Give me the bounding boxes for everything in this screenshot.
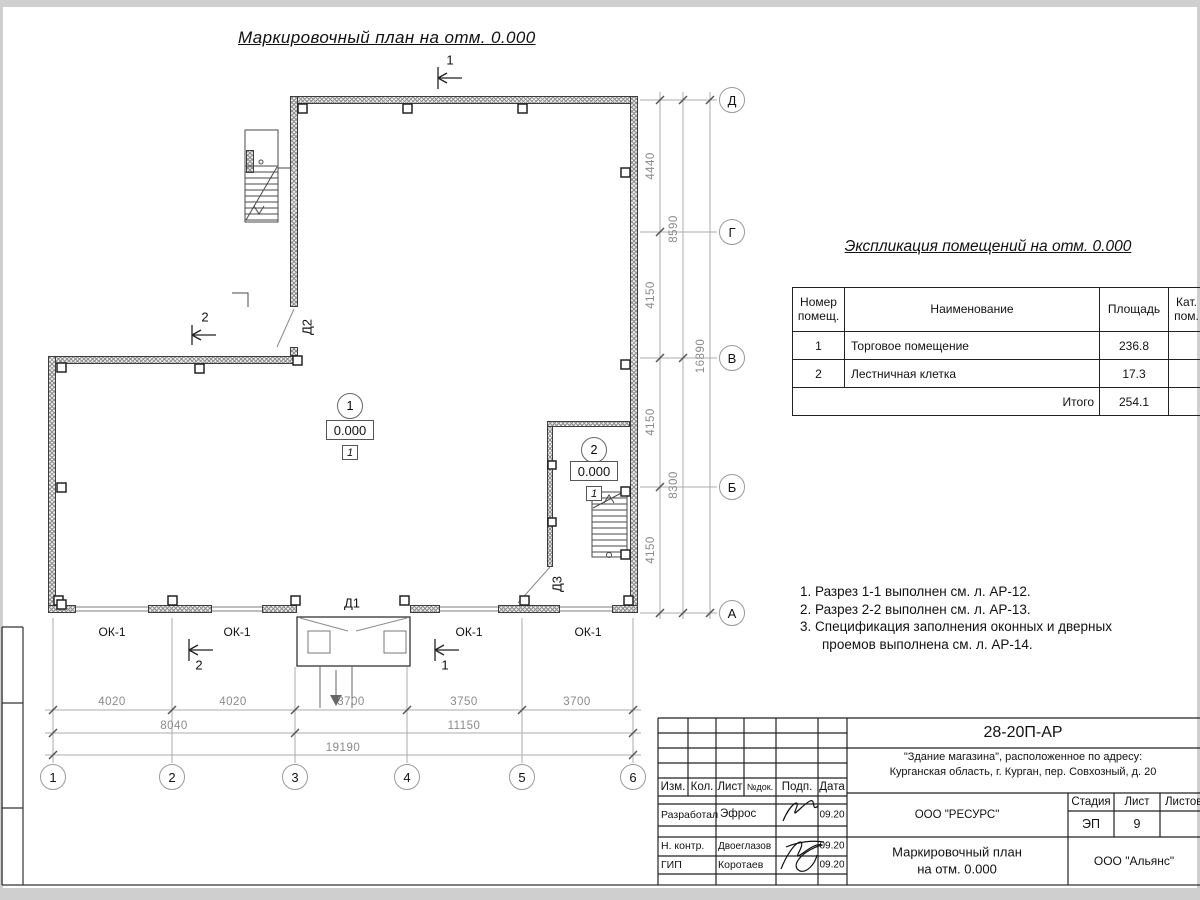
drawing-page: Маркировочный план на отм. 0.000 Эксплик…: [0, 0, 1200, 900]
col-header-name: Наименование: [845, 288, 1100, 332]
section-mark-2-left: 2: [201, 310, 208, 325]
window-label-ok1: ОК-1: [99, 625, 126, 639]
door-label-d1: Д1: [344, 596, 360, 611]
total-label: Итого: [793, 388, 1100, 416]
plan-title: Маркировочный план на отм. 0.000: [238, 28, 536, 48]
window-label-ok1: ОК-1: [456, 625, 483, 639]
cell-number: 1: [793, 332, 845, 360]
dim-text: 11150: [448, 720, 481, 732]
tb-col-izm: Изм.: [661, 781, 686, 793]
cell-category: [1169, 332, 1200, 360]
note-line: 3. Спецификация заполнения оконных и две…: [800, 618, 1112, 636]
tb-address-line2: Курганская область, г. Курган, пер. Совх…: [890, 766, 1157, 778]
exterior-stair: [232, 130, 292, 307]
dim-text: 3750: [450, 696, 478, 708]
tb-col-doc: №док.: [747, 782, 773, 792]
column-markers: [54, 104, 633, 609]
dim-text: 8590: [668, 215, 680, 243]
col-header-number: Номер помещ.: [793, 288, 845, 332]
tb-col-list: Лист: [718, 781, 743, 793]
room-number-bubble: 1: [337, 393, 363, 419]
axis-bubble-g: Г: [719, 219, 745, 245]
door-label-d3: Д3: [550, 576, 565, 592]
door-swings: [277, 309, 550, 631]
dim-text: 4150: [645, 536, 657, 564]
window-label-ok1: ОК-1: [575, 625, 602, 639]
col-header-category: Кат. пом.: [1169, 288, 1200, 332]
table-row: 2 Лестничная клетка 17.3: [793, 360, 1200, 388]
room-number-bubble: 2: [581, 437, 607, 463]
tb-client-org: ООО "Альянс": [1094, 854, 1174, 868]
axis-bubble-b: Б: [719, 474, 745, 500]
dimension-ticks: [49, 96, 714, 759]
tb-role-date: 09.20: [819, 841, 844, 852]
tb-address-line1: "Здание магазина", расположенное по адре…: [904, 751, 1142, 763]
tb-sheets-header: Листов: [1165, 796, 1200, 808]
notes-block: 1. Разрез 1-1 выполнен см. л. АР-12. 2. …: [800, 583, 1112, 653]
explication-title: Экспликация помещений на отм. 0.000: [845, 238, 1132, 256]
note-line: проемов выполнена см. л. АР-14.: [800, 636, 1112, 654]
cell-category: [1169, 388, 1200, 416]
room-floor-type-box: 1: [586, 486, 602, 501]
tb-role-name: Двоеглазов: [718, 841, 771, 852]
tb-sheet-header: Лист: [1125, 796, 1150, 808]
table-total-row: Итого 254.1: [793, 388, 1200, 416]
axis-leader-lines: [53, 100, 717, 763]
cell-number: 2: [793, 360, 845, 388]
tb-role-date: 09.20: [819, 810, 844, 821]
tb-stage-value: ЭП: [1082, 817, 1100, 831]
table-row: 1 Торговое помещение 236.8: [793, 332, 1200, 360]
tb-col-podp: Подп.: [782, 781, 813, 793]
tb-role-name: Коротаев: [718, 859, 763, 871]
room-elevation-box: 0.000: [326, 420, 374, 440]
note-line: 2. Разрез 2-2 выполнен см. л. АР-13.: [800, 601, 1112, 619]
tb-designer-org: ООО "РЕСУРС": [915, 809, 1000, 821]
dimension-lines: [45, 92, 710, 755]
tb-role-name: Эфрос: [720, 808, 756, 820]
note-line: 1. Разрез 1-1 выполнен см. л. АР-12.: [800, 583, 1112, 601]
dim-text: 8300: [668, 471, 680, 499]
axis-bubble-2: 2: [159, 764, 185, 790]
cell-area: 17.3: [1100, 360, 1169, 388]
entrance-porch: [297, 617, 410, 708]
dim-text: 16890: [695, 339, 707, 373]
section-mark-2-bottom: 2: [195, 658, 202, 673]
axis-bubble-v: В: [719, 345, 745, 371]
dim-text: 8040: [160, 720, 188, 732]
table-header-row: Номер помещ. Наименование Площадь Кат. п…: [793, 288, 1200, 332]
axis-bubble-4: 4: [394, 764, 420, 790]
cell-category: [1169, 360, 1200, 388]
axis-bubble-5: 5: [509, 764, 535, 790]
tb-drawing-name-line1: Маркировочный план: [892, 845, 1022, 860]
section-mark-1-top: 1: [446, 53, 453, 68]
dim-text: 3700: [337, 696, 365, 708]
axis-bubble-a: А: [719, 600, 745, 626]
total-area: 254.1: [1100, 388, 1169, 416]
axis-bubble-3: 3: [282, 764, 308, 790]
tb-role-label: ГИП: [661, 859, 682, 871]
explication-table: Номер помещ. Наименование Площадь Кат. п…: [792, 287, 1200, 416]
tb-col-kol: Кол.: [691, 781, 714, 793]
cell-name: Лестничная клетка: [845, 360, 1100, 388]
room-floor-type-box: 1: [342, 445, 358, 460]
dim-text: 4020: [98, 696, 126, 708]
tb-role-label: Разработал: [661, 809, 718, 821]
dim-text: 4440: [645, 152, 657, 180]
tb-stage-header: Стадия: [1071, 796, 1110, 808]
axis-bubble-1: 1: [40, 764, 66, 790]
tb-doc-code: 28-20П-АР: [983, 724, 1062, 742]
window-label-ok1: ОК-1: [224, 625, 251, 639]
cell-area: 236.8: [1100, 332, 1169, 360]
dim-text: 19190: [326, 742, 360, 754]
door-label-d2: Д2: [300, 319, 315, 335]
axis-bubble-d: Д: [719, 87, 745, 113]
tb-role-label: Н. контр.: [661, 840, 704, 852]
dim-text: 4150: [645, 408, 657, 436]
dim-text: 4020: [219, 696, 247, 708]
tb-role-date: 09.20: [819, 860, 844, 871]
tb-sheet-number: 9: [1134, 817, 1141, 831]
room-elevation-box: 0.000: [570, 461, 618, 481]
tb-drawing-name-line2: на отм. 0.000: [917, 862, 997, 877]
section-mark-1-bottom: 1: [441, 658, 448, 673]
section-marks: [189, 67, 462, 661]
dim-text: 3700: [563, 696, 591, 708]
dim-text: 4150: [645, 281, 657, 309]
cell-name: Торговое помещение: [845, 332, 1100, 360]
axis-bubble-6: 6: [620, 764, 646, 790]
tb-col-data: Дата: [819, 781, 844, 793]
col-header-area: Площадь: [1100, 288, 1169, 332]
